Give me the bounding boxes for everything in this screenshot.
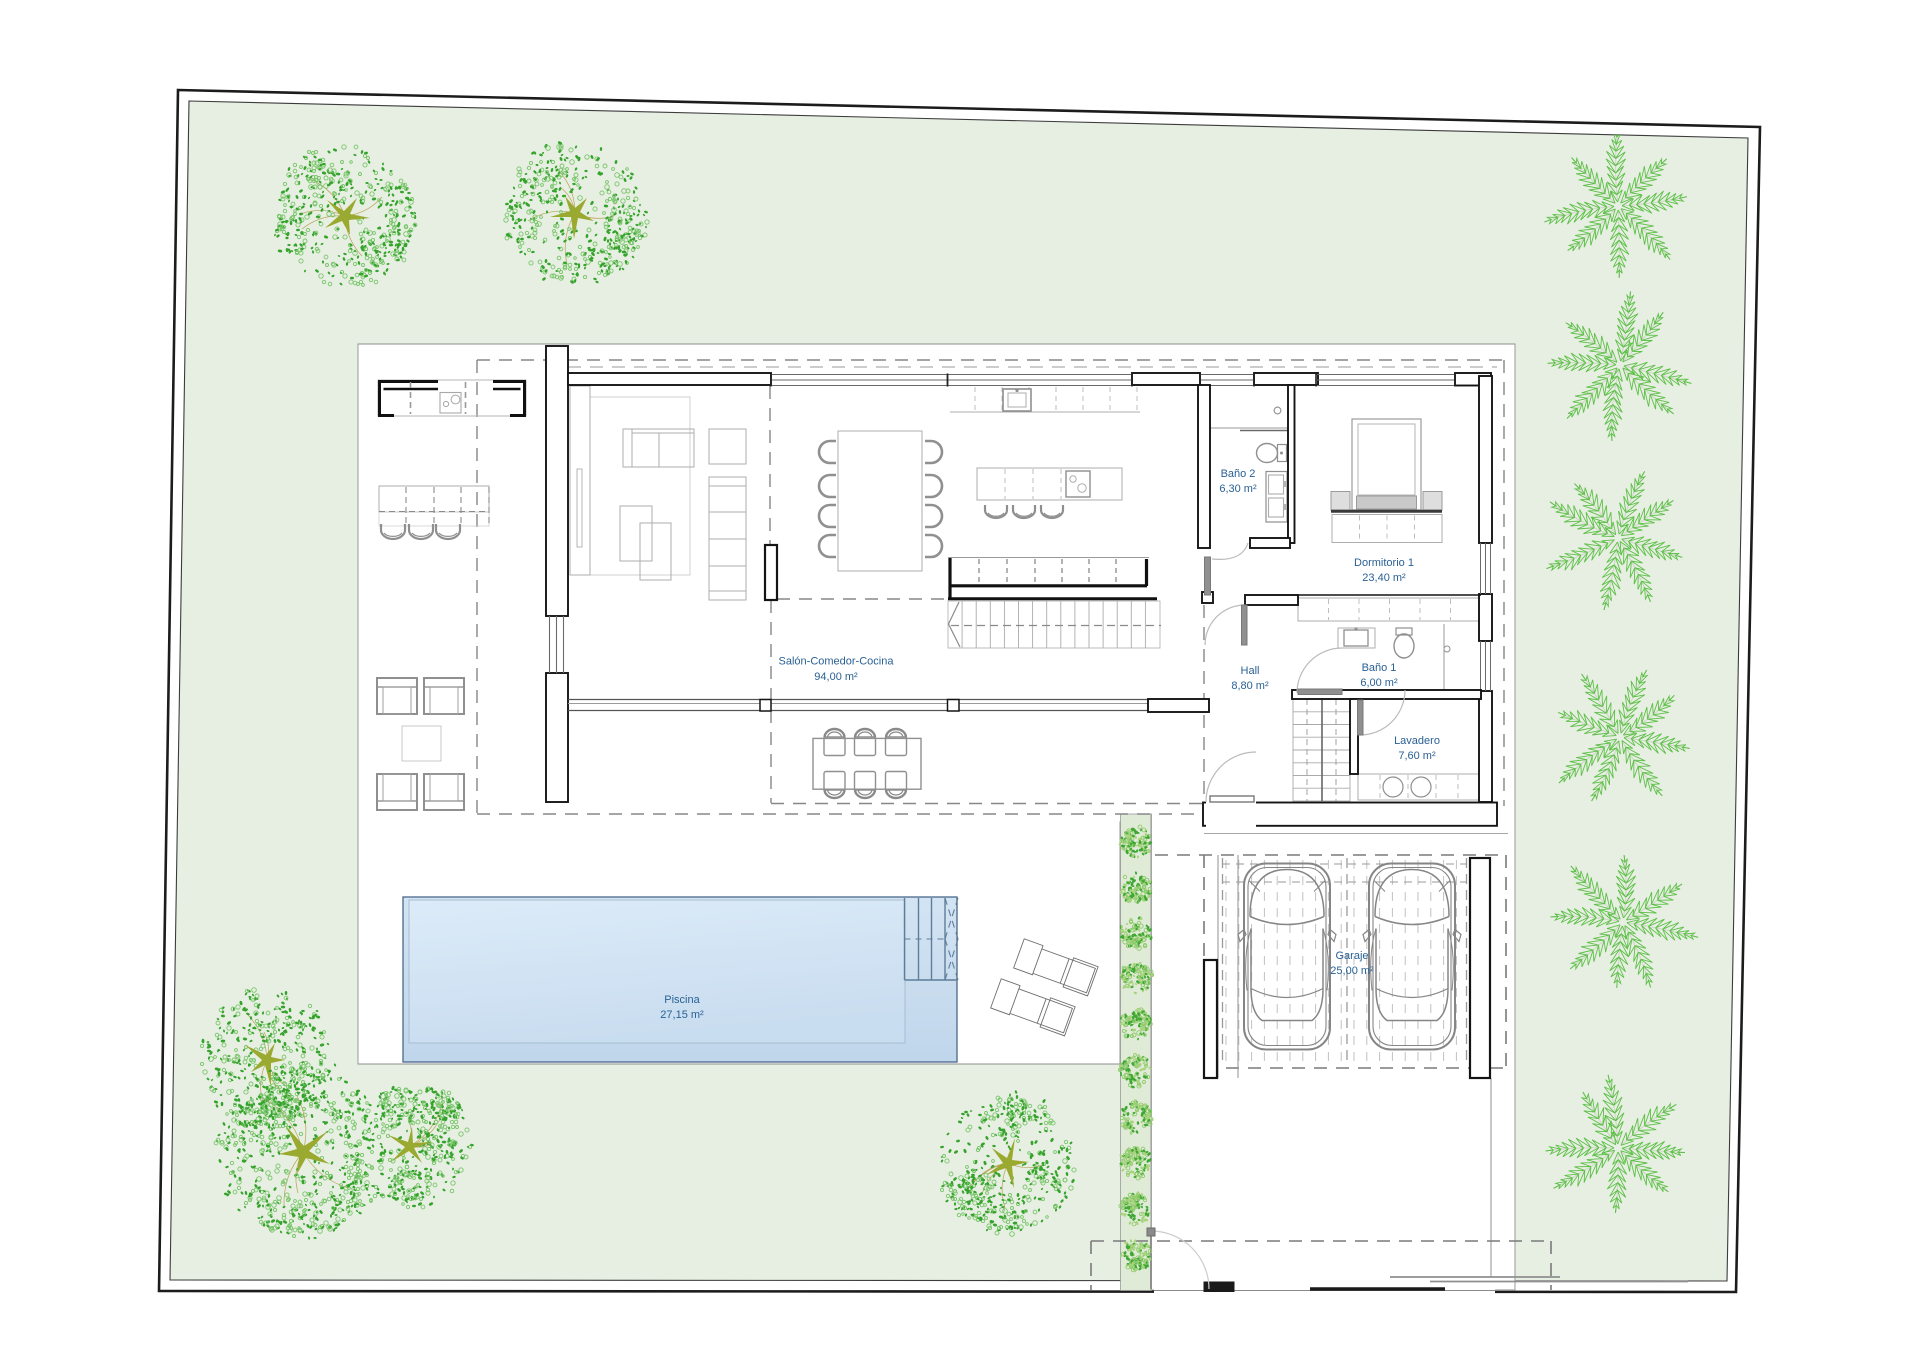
svg-text:6,30 m²: 6,30 m² xyxy=(1219,483,1257,495)
svg-text:Garaje: Garaje xyxy=(1335,950,1368,962)
svg-text:Hall: Hall xyxy=(1241,665,1260,677)
svg-text:8,80 m²: 8,80 m² xyxy=(1231,680,1269,692)
svg-text:6,00 m²: 6,00 m² xyxy=(1360,677,1398,689)
svg-text:27,15 m²: 27,15 m² xyxy=(660,1009,704,1021)
svg-text:94,00 m²: 94,00 m² xyxy=(814,671,858,683)
svg-text:Piscina: Piscina xyxy=(664,994,700,1006)
svg-text:7,60 m²: 7,60 m² xyxy=(1398,750,1436,762)
svg-text:Dormitorio 1: Dormitorio 1 xyxy=(1354,557,1414,569)
svg-text:Salón-Comedor-Cocina: Salón-Comedor-Cocina xyxy=(779,656,895,668)
svg-text:Lavadero: Lavadero xyxy=(1394,735,1440,747)
svg-text:25,00 m²: 25,00 m² xyxy=(1330,965,1374,977)
svg-text:Baño 1: Baño 1 xyxy=(1362,662,1397,674)
svg-text:Baño 2: Baño 2 xyxy=(1221,468,1256,480)
svg-text:23,40 m²: 23,40 m² xyxy=(1362,572,1406,584)
